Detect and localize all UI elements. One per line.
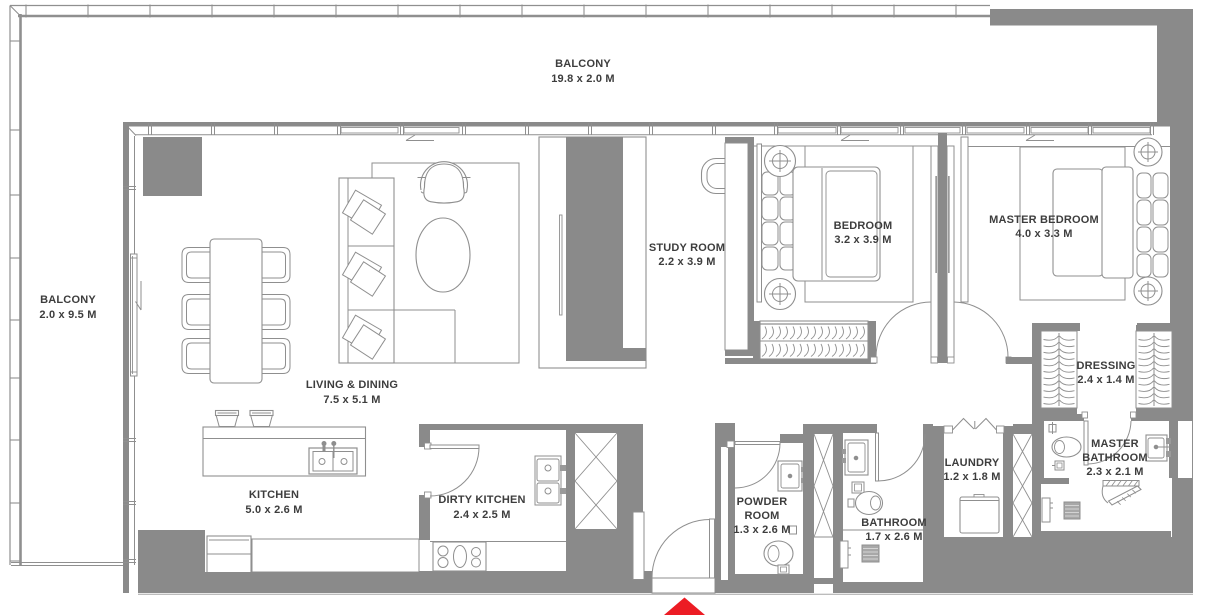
svg-text:LAUNDRY: LAUNDRY <box>945 457 1000 469</box>
svg-text:ROOM: ROOM <box>744 510 779 522</box>
svg-text:DRESSING: DRESSING <box>1076 360 1135 372</box>
svg-text:STUDY ROOM: STUDY ROOM <box>649 242 725 254</box>
svg-text:2.2 x 3.9 M: 2.2 x 3.9 M <box>658 256 715 268</box>
svg-text:MASTER BEDROOM: MASTER BEDROOM <box>989 214 1099 226</box>
svg-text:MASTER: MASTER <box>1091 438 1139 450</box>
svg-text:2.3 x 2.1 M: 2.3 x 2.1 M <box>1086 466 1143 478</box>
svg-text:1.7 x 2.6 M: 1.7 x 2.6 M <box>865 531 922 543</box>
svg-text:2.4 x 1.4 M: 2.4 x 1.4 M <box>1077 374 1134 386</box>
svg-text:KITCHEN: KITCHEN <box>249 489 299 501</box>
svg-text:DIRTY KITCHEN: DIRTY KITCHEN <box>438 494 525 506</box>
svg-text:BATHROOM: BATHROOM <box>1082 452 1148 464</box>
svg-text:BEDROOM: BEDROOM <box>834 220 893 232</box>
svg-text:7.5 x 5.1 M: 7.5 x 5.1 M <box>323 394 380 406</box>
svg-text:19.8 x 2.0 M: 19.8 x 2.0 M <box>551 73 615 85</box>
svg-text:2.4 x 2.5 M: 2.4 x 2.5 M <box>453 509 510 521</box>
svg-text:1.2 x 1.8 M: 1.2 x 1.8 M <box>943 471 1000 483</box>
svg-text:5.0 x 2.6 M: 5.0 x 2.6 M <box>245 504 302 516</box>
svg-text:BATHROOM: BATHROOM <box>861 517 927 529</box>
svg-text:2.0 x 9.5 M: 2.0 x 9.5 M <box>39 309 96 321</box>
svg-text:BALCONY: BALCONY <box>40 294 96 306</box>
svg-text:3.2 x 3.9 M: 3.2 x 3.9 M <box>834 234 891 246</box>
svg-text:LIVING & DINING: LIVING & DINING <box>306 379 398 391</box>
svg-text:4.0 x 3.3 M: 4.0 x 3.3 M <box>1015 228 1072 240</box>
svg-text:BALCONY: BALCONY <box>555 58 611 70</box>
svg-text:1.3 x 2.6 M: 1.3 x 2.6 M <box>733 524 790 536</box>
svg-text:POWDER: POWDER <box>737 496 788 508</box>
